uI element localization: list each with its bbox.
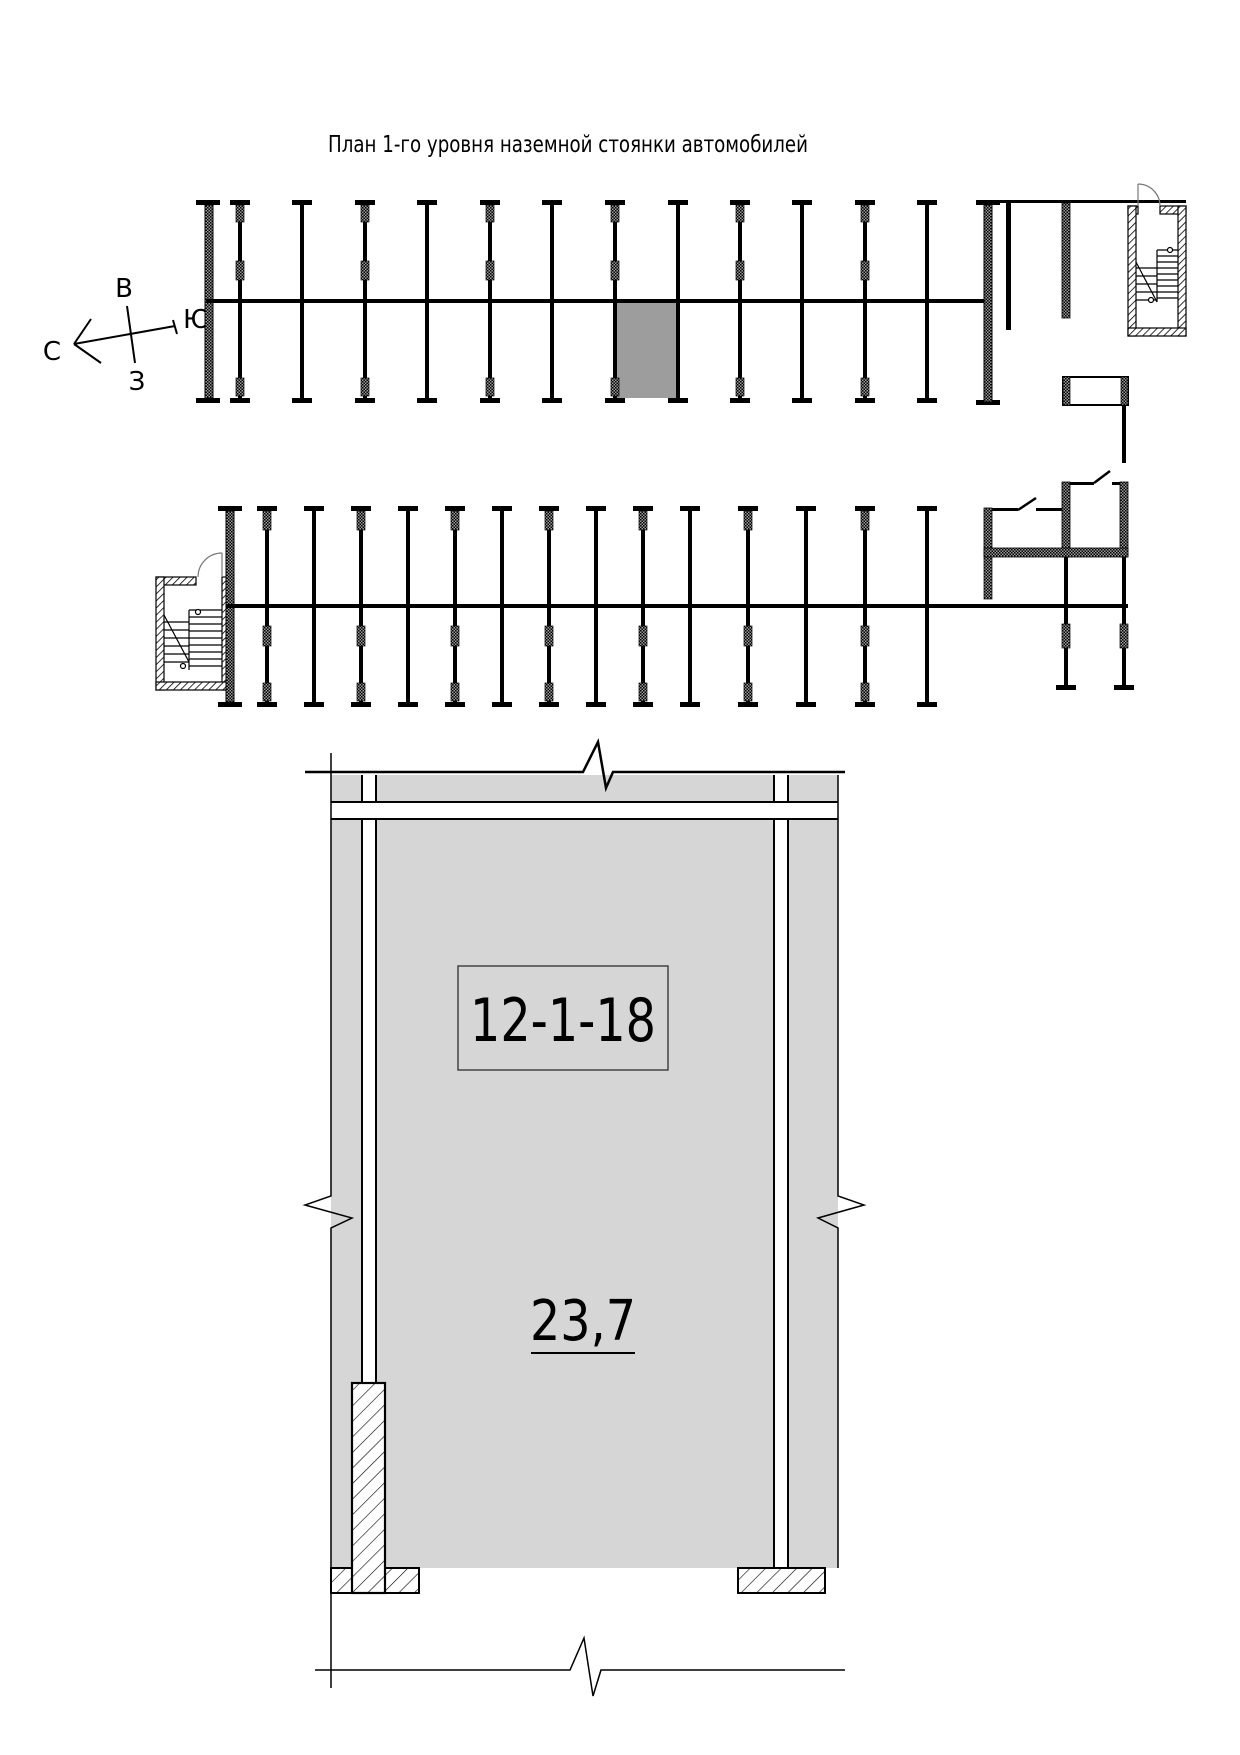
utility-box [1063, 377, 1128, 463]
plan-title-text: План 1-го уровня наземной стоянки автомо… [328, 132, 808, 158]
compass-main-axis [74, 326, 175, 344]
right-footing [738, 1568, 825, 1593]
lower-row-centerline [226, 604, 1128, 608]
stairwell-top-right [1128, 184, 1186, 336]
annex-hatched-wall [1062, 203, 1070, 318]
parking-space-detail-area [331, 775, 838, 1568]
door-leaf [1094, 471, 1110, 483]
top-wall-band [331, 801, 838, 820]
highlighted-parking-space [617, 303, 676, 398]
compass-label-north: С [43, 337, 61, 367]
room-column-dividers [1056, 557, 1134, 690]
annex-partition [1006, 203, 1011, 330]
space-area: 23,7 [530, 1289, 636, 1354]
stairwell-bottom-left [156, 553, 230, 690]
right-wall-channel [773, 775, 789, 1568]
area-underline [531, 1352, 635, 1354]
room-bottom-wall [984, 548, 1128, 557]
space-id-box: 12-1-18 [458, 966, 668, 1070]
upper-row-centerline [206, 299, 988, 303]
space-area-label: 23,7 [530, 1289, 636, 1354]
compass-label-west: З [129, 367, 146, 397]
compass-arrow-lower-leg [74, 344, 101, 363]
column-section [352, 1383, 385, 1593]
floor-plan-drawing: План 1-го уровня наземной стоянки автомо… [0, 0, 1240, 1755]
floor-plan-page: План 1-го уровня наземной стоянки автомо… [0, 0, 1240, 1755]
annex-top-wall [992, 200, 1186, 203]
lower-parking-row [156, 471, 1134, 707]
space-id-label: 12-1-18 [470, 986, 656, 1056]
door-leaf [1018, 498, 1036, 510]
detail-plan: 12-1-18 23,7 [305, 742, 864, 1696]
compass-label-east: В [115, 274, 133, 304]
compass-rose: В Ю С З [43, 274, 211, 397]
bottom-boundary-break-line [315, 1638, 845, 1696]
left-wall-channel [361, 775, 377, 1383]
plan-title: План 1-го уровня наземной стоянки автомо… [328, 132, 808, 158]
lower-row-rooms [984, 471, 1134, 690]
compass-arrow-upper-leg [74, 319, 91, 344]
door-arc [198, 553, 222, 577]
upper-row-rooms [992, 184, 1186, 463]
upper-parking-row [196, 184, 1186, 463]
